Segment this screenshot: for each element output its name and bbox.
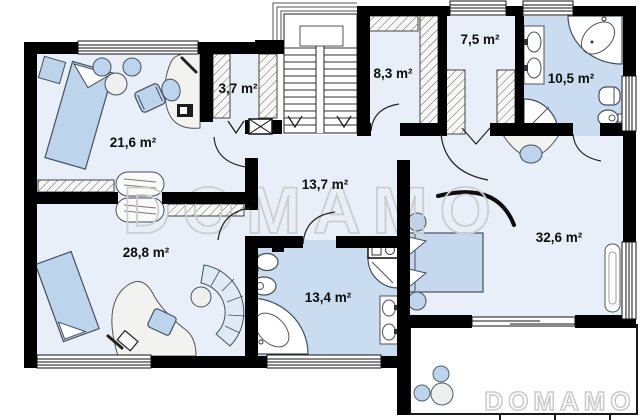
room-label-3-7: 3,7 m² bbox=[218, 81, 258, 96]
room-label-7-5: 7,5 m² bbox=[460, 32, 500, 47]
desk-chair bbox=[520, 145, 542, 163]
room-label-8-3: 8,3 m² bbox=[373, 66, 413, 81]
room-label-10-5: 10,5 m² bbox=[548, 71, 595, 86]
terrace-table bbox=[431, 383, 453, 405]
double-sink bbox=[380, 296, 398, 344]
floor-plan-page: DOMAMO DOMAMO bbox=[0, 0, 640, 420]
nightstand bbox=[408, 292, 426, 310]
terrace-pouf bbox=[433, 366, 449, 382]
radiator bbox=[605, 244, 620, 312]
room-label-28-8: 28,8 m² bbox=[123, 245, 170, 260]
room-label-21-6: 21,6 m² bbox=[110, 135, 157, 150]
terrace-pouf bbox=[414, 385, 430, 401]
watermark-corner: DOMAMO bbox=[484, 386, 635, 416]
toilet bbox=[599, 87, 620, 105]
ventilation-shaft bbox=[249, 119, 272, 134]
room-label-32-6: 32,6 m² bbox=[536, 230, 583, 245]
room-label-13-4: 13,4 m² bbox=[305, 290, 352, 305]
side-table bbox=[191, 287, 211, 307]
double-sink bbox=[524, 26, 544, 84]
room-label-13-7: 13,7 m² bbox=[302, 177, 349, 192]
floor-plan-svg: DOMAMO DOMAMO bbox=[0, 0, 640, 420]
